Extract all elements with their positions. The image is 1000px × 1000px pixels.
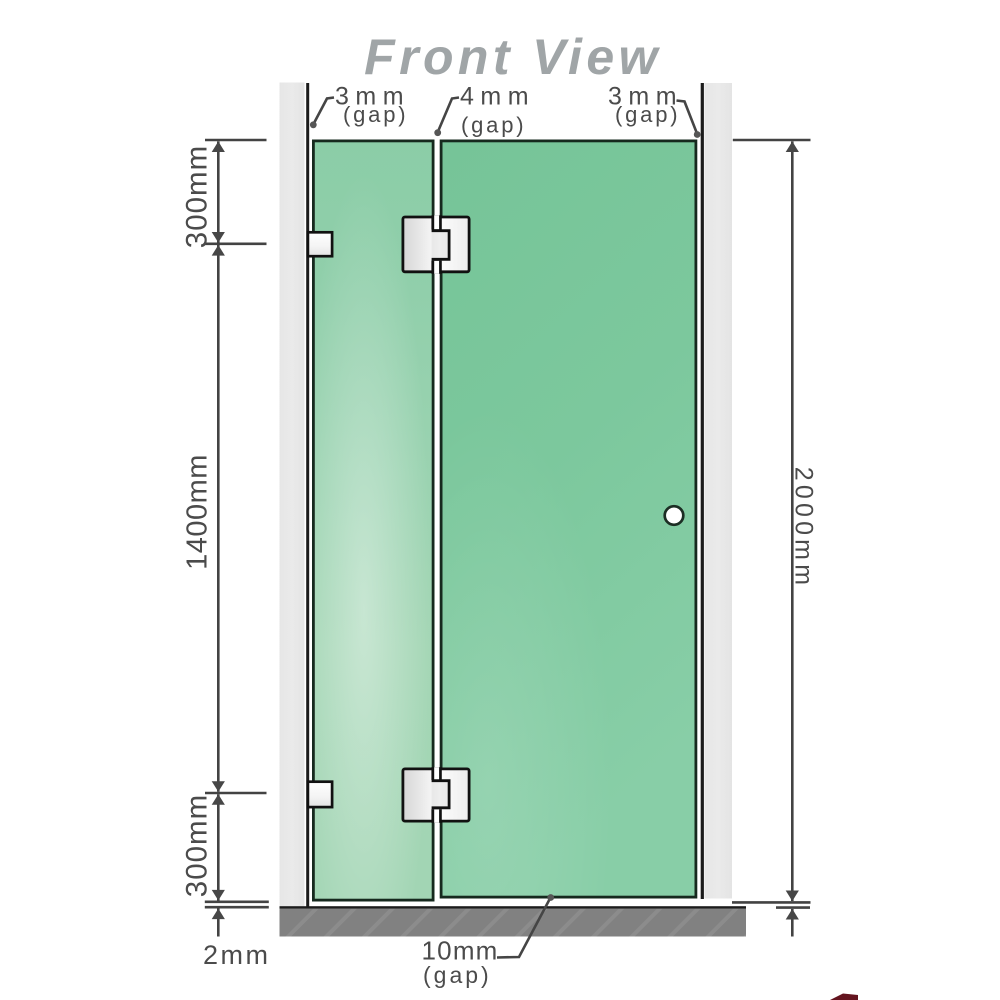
svg-text:10mm: 10mm: [422, 936, 499, 966]
svg-text:2000mm: 2000mm: [790, 467, 818, 589]
svg-text:2mm: 2mm: [203, 940, 271, 970]
svg-text:(gap): (gap): [343, 102, 408, 127]
svg-text:(gap): (gap): [423, 962, 492, 988]
svg-text:4mm: 4mm: [460, 83, 535, 111]
svg-text:1400mm: 1400mm: [182, 454, 214, 570]
svg-text:(gap): (gap): [615, 102, 680, 127]
svg-text:300mm: 300mm: [181, 794, 214, 897]
svg-text:300mm: 300mm: [181, 145, 214, 248]
svg-text:Front View: Front View: [364, 29, 662, 85]
svg-text:(gap): (gap): [461, 113, 526, 138]
